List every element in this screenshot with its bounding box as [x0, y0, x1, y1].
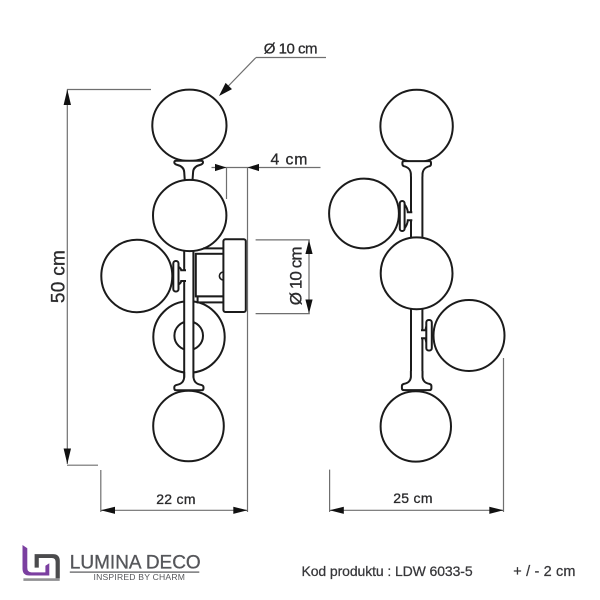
svg-text:22 cm: 22 cm	[156, 491, 196, 507]
svg-text:Kod produktu : LDW 6033-5: Kod produktu : LDW 6033-5	[302, 563, 473, 579]
svg-text:25 cm: 25 cm	[393, 490, 433, 506]
svg-text:LUMINA DECO: LUMINA DECO	[70, 552, 201, 573]
svg-text:4 cm: 4 cm	[270, 152, 308, 169]
svg-text:50 cm: 50 cm	[49, 250, 70, 303]
svg-text:Ø 10 cm: Ø 10 cm	[287, 247, 306, 306]
svg-text:+ / - 2 cm: + / - 2 cm	[513, 564, 575, 580]
svg-text:INSPIRED BY CHARM: INSPIRED BY CHARM	[94, 572, 186, 582]
svg-text:Ø 10 cm: Ø 10 cm	[264, 41, 317, 58]
